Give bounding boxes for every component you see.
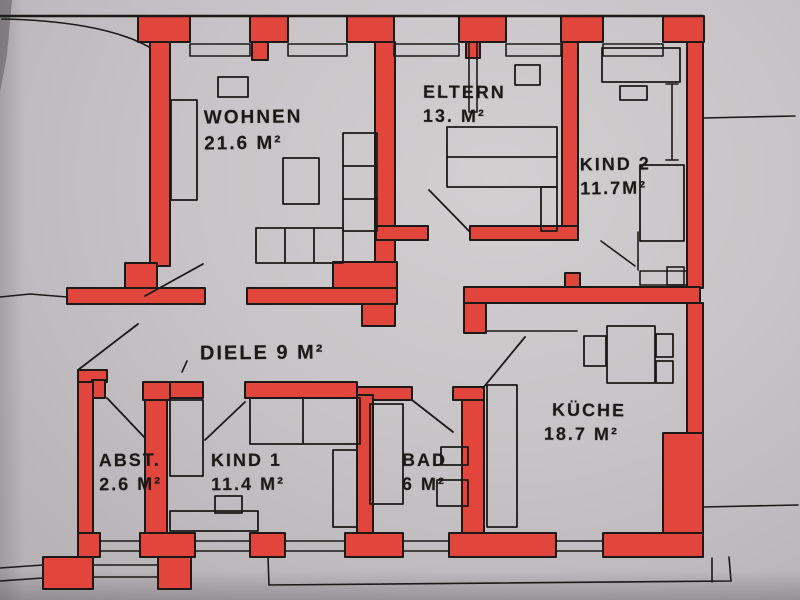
room-label-abst: ABST. 2.6 M² bbox=[99, 448, 163, 497]
room-area: 13. M² bbox=[423, 104, 506, 129]
red-walls bbox=[43, 16, 704, 589]
room-name: WOHNEN bbox=[204, 106, 303, 128]
room-name: BAD bbox=[402, 450, 447, 470]
room-area: 18.7 M² bbox=[544, 422, 626, 447]
room-label-kind1: KIND 1 11.4 M² bbox=[211, 448, 285, 497]
photo-edge-shadow bbox=[0, 0, 12, 92]
floor-plan-photo: WOHNEN 21.6 M² ELTERN 13. M² KIND 2 11.7… bbox=[0, 0, 800, 600]
room-label-diele: DIELE 9 M² bbox=[200, 339, 325, 367]
room-label-wohnen: WOHNEN 21.6 M² bbox=[204, 104, 303, 156]
room-name: ELTERN bbox=[423, 82, 506, 103]
room-area: 11.4 M² bbox=[211, 472, 285, 497]
room-area: 21.6 M² bbox=[204, 130, 303, 157]
room-area: 2.6 M² bbox=[99, 472, 162, 497]
room-name: DIELE 9 M² bbox=[200, 341, 325, 364]
floorplan-drawing bbox=[0, 0, 800, 600]
room-label-kind2: KIND 2 11.7M² bbox=[580, 152, 652, 202]
room-label-bad: BAD 6 M² bbox=[402, 448, 447, 497]
room-name: KÜCHE bbox=[552, 400, 626, 421]
room-name: KIND 1 bbox=[211, 450, 282, 470]
room-name: ABST. bbox=[99, 450, 161, 471]
room-label-kueche: KÜCHE 18.7 M² bbox=[552, 398, 626, 447]
room-label-eltern: ELTERN 13. M² bbox=[423, 80, 506, 129]
room-area: 11.7M² bbox=[580, 176, 651, 201]
room-area: 6 M² bbox=[402, 472, 447, 497]
room-name: KIND 2 bbox=[580, 154, 651, 175]
